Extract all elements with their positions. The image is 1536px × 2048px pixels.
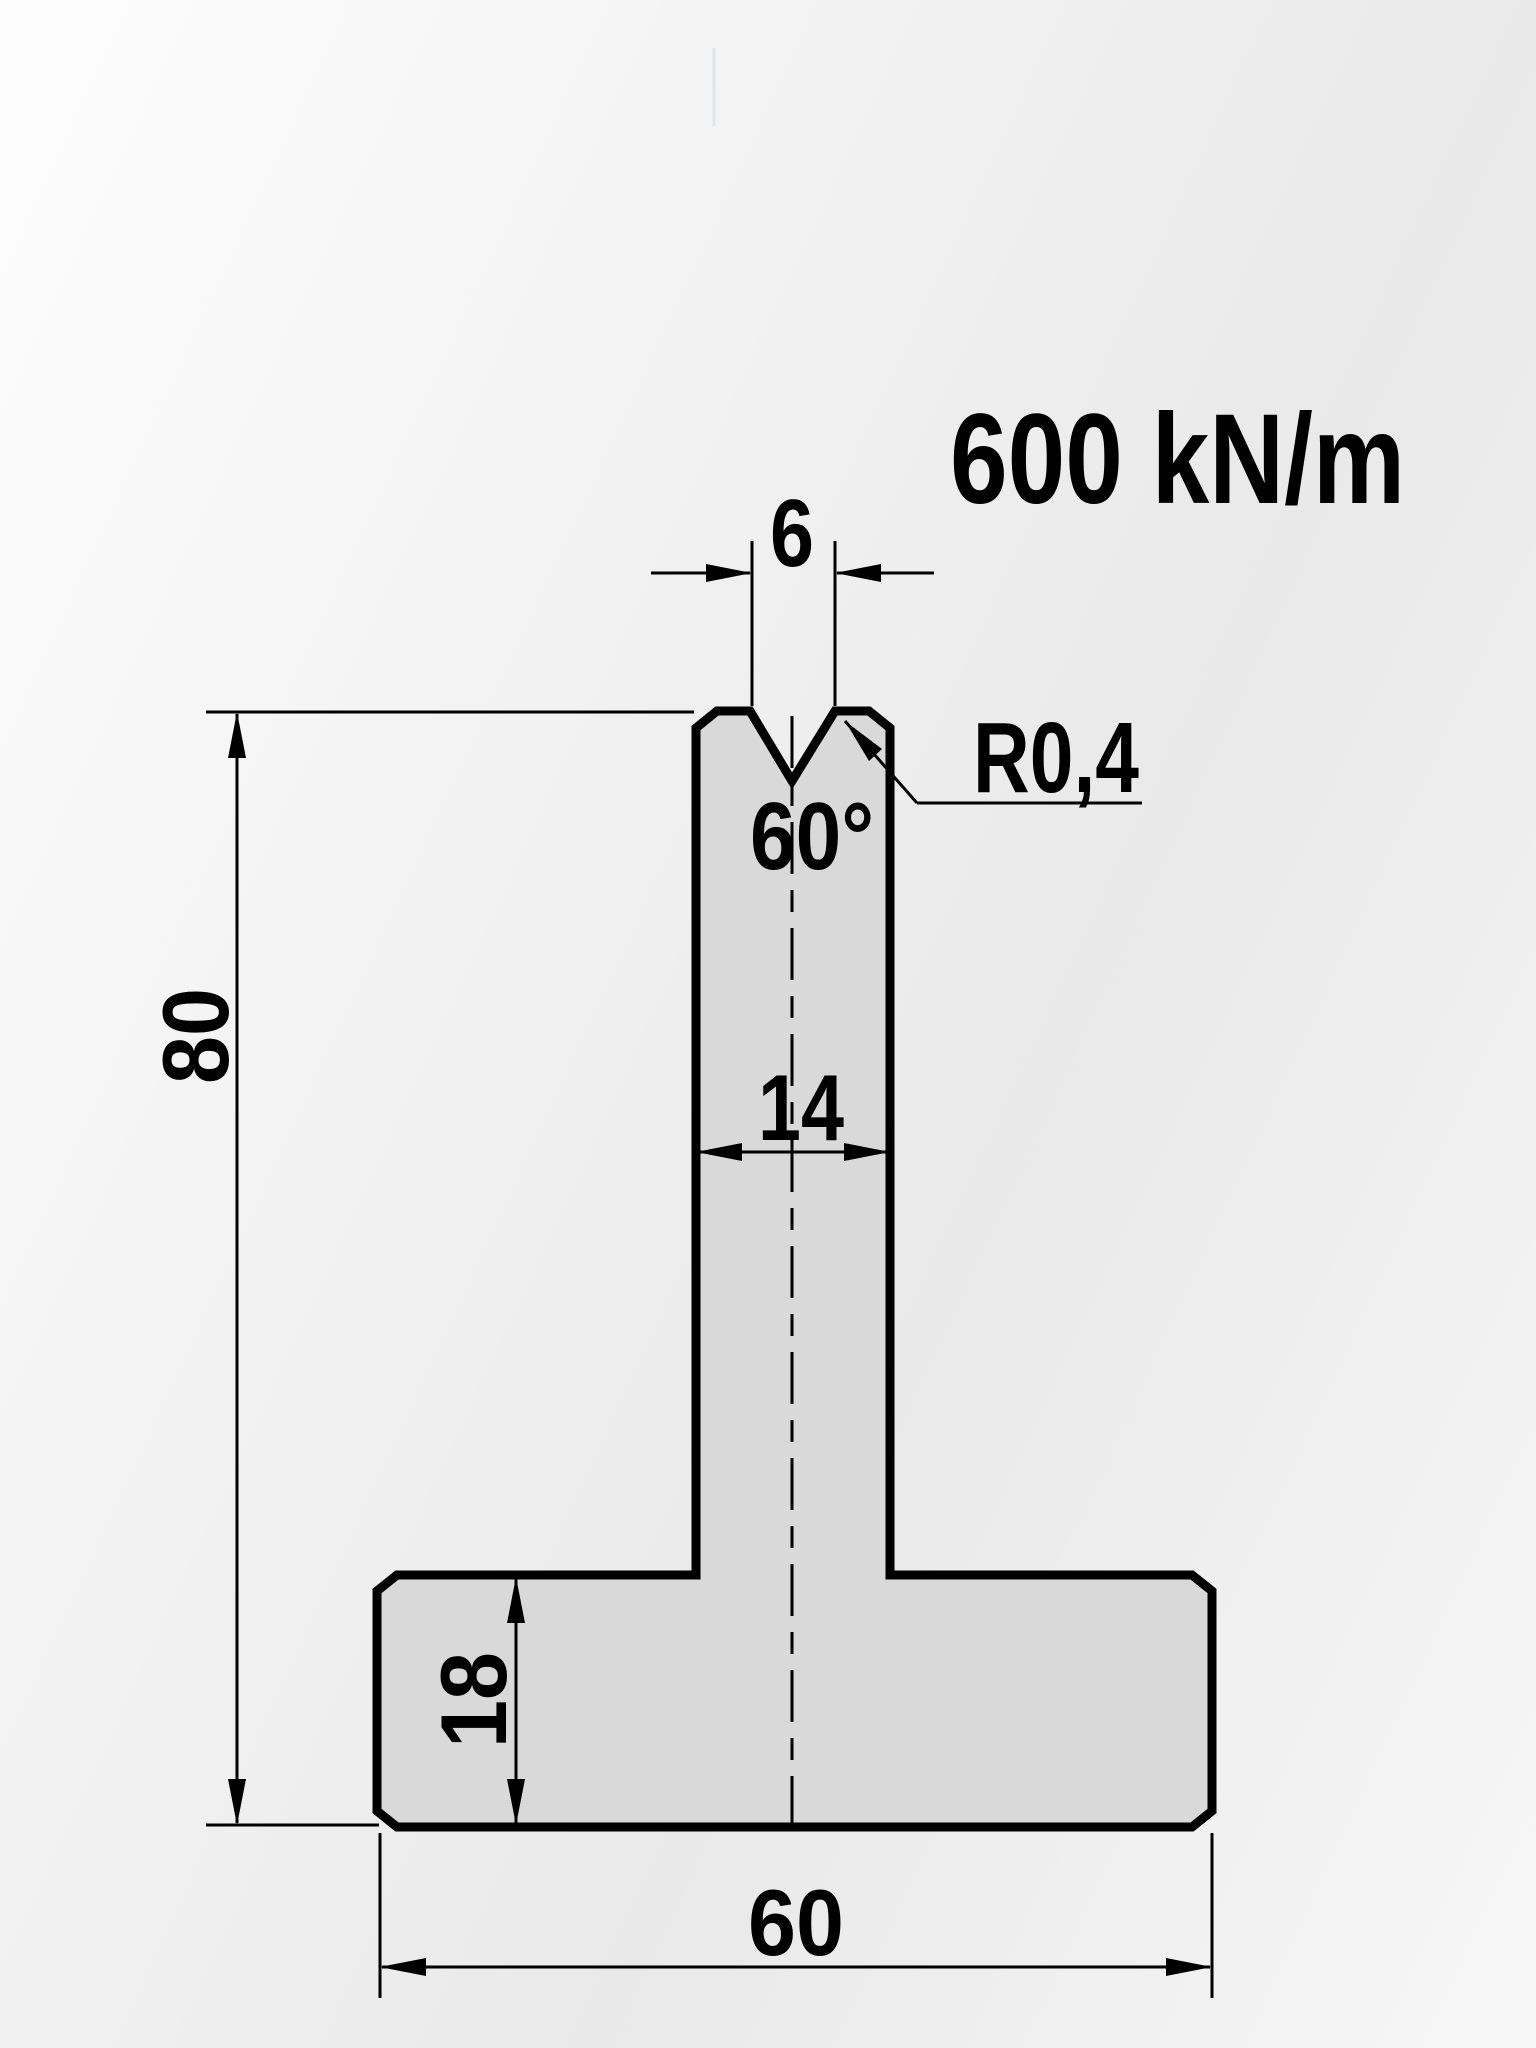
dim-total-height-label: 80 <box>143 988 248 1084</box>
dim-base-width-label: 60 <box>748 1870 844 1975</box>
t-die-drawing: 6 80 14 18 <box>0 0 1536 2048</box>
dim-base-width: 60 <box>380 1833 1212 1998</box>
technical-drawing-page: 6 80 14 18 <box>0 0 1536 2048</box>
dim-base-height-label: 18 <box>421 1652 526 1748</box>
arrowhead-right-icon <box>706 564 752 582</box>
arrowhead-left-icon <box>835 564 881 582</box>
dim-stem-width-label: 14 <box>758 1055 844 1160</box>
arrowhead-up-icon <box>228 712 246 758</box>
arrowhead-down-icon <box>228 1779 246 1825</box>
vee-angle-label: 60° <box>750 783 874 890</box>
dim-vee-opening: 6 <box>651 480 934 706</box>
vee-radius-label: R0,4 <box>973 702 1139 814</box>
arrowhead-right-icon <box>1166 1958 1212 1976</box>
load-rating-label: 600 kN/m <box>950 388 1405 531</box>
dim-vee-opening-label: 6 <box>770 480 814 587</box>
arrowhead-left-icon <box>380 1958 426 1976</box>
